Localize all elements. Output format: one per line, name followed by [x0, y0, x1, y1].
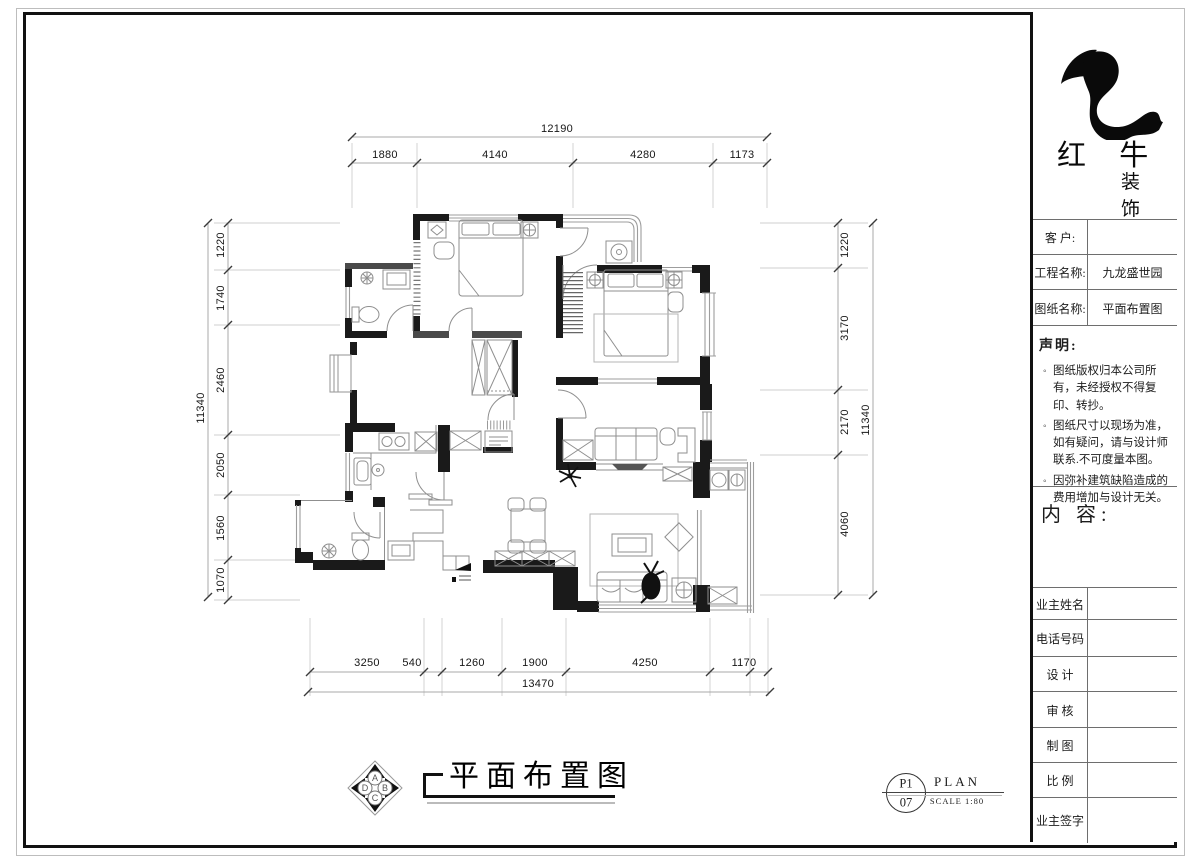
dimension-label: 1260	[459, 657, 485, 669]
field-label: 图纸名称:	[1033, 290, 1088, 326]
brand-logo-icon	[1051, 40, 1163, 140]
dimension-label: 12190	[541, 123, 573, 135]
dimension-label: 540	[402, 657, 421, 669]
dimension-label: 13470	[522, 678, 554, 690]
field-label: 客 户:	[1033, 220, 1088, 255]
field-row-customer: 客 户:	[1033, 219, 1177, 255]
dimension-label: 3170	[839, 315, 851, 341]
dimension-label: 2170	[839, 409, 851, 435]
dimension-label: 1220	[839, 232, 851, 258]
info-row: 业主签字	[1033, 797, 1177, 843]
sheet-number-top: P1	[899, 777, 912, 792]
caption-mark	[423, 773, 443, 776]
caption-mark	[423, 773, 426, 797]
field-value: 九龙盛世园	[1088, 264, 1177, 281]
info-row: 比 例	[1033, 762, 1177, 798]
dimension-label: 1220	[215, 232, 227, 258]
info-row: 设 计	[1033, 656, 1177, 692]
sheet-name: PLAN	[934, 774, 980, 790]
extension-lines	[214, 143, 868, 696]
dimension-label: 4060	[839, 511, 851, 537]
info-row: 业主姓名	[1033, 587, 1177, 620]
svg-text:D: D	[362, 783, 369, 793]
info-label: 业主签字	[1033, 798, 1088, 843]
furniture	[301, 220, 747, 604]
floor-plan	[0, 0, 1030, 865]
sheet-scale: SCALE 1:80	[930, 796, 984, 806]
dimension-label: 11340	[195, 392, 207, 423]
info-label: 设 计	[1033, 657, 1088, 692]
compass-icon: A B C D	[346, 759, 404, 817]
dimension-label: 4280	[630, 149, 656, 161]
dimension-label: 2460	[215, 367, 227, 393]
svg-text:C: C	[372, 793, 379, 803]
dimension-label: 1070	[215, 567, 227, 593]
caption-underline-echo	[427, 802, 615, 804]
dimension-label: 1170	[732, 657, 757, 669]
info-label: 审 核	[1033, 692, 1088, 728]
drawing-sheet: { "title_block": { "brand": { "line1": "…	[0, 0, 1200, 865]
brand-subname: 装 饰	[1121, 167, 1177, 221]
statement-heading: 声明:	[1039, 336, 1172, 357]
info-label: 业主姓名	[1033, 588, 1088, 620]
divider	[1033, 486, 1177, 487]
dimension-label: 2050	[215, 452, 227, 478]
statement: 声明: 图纸版权归本公司所有，未经授权不得复印、转抄。 图纸尺寸以现场为准，如有…	[1039, 336, 1172, 510]
dimension-label: 1900	[522, 657, 548, 669]
info-label: 电话号码	[1033, 620, 1088, 657]
windows	[297, 215, 754, 613]
dimension-label: 1740	[215, 285, 227, 311]
drawing-caption: 平面布置图	[449, 751, 634, 795]
dimension-label: 1880	[372, 149, 398, 161]
dimension-label: 4250	[632, 657, 658, 669]
dimension-label: 1560	[215, 515, 227, 541]
dimension-label: 4140	[482, 149, 508, 161]
svg-text:B: B	[382, 783, 388, 793]
info-row: 电话号码	[1033, 619, 1177, 657]
statement-item: 图纸版权归本公司所有，未经授权不得复印、转抄。	[1043, 363, 1170, 415]
info-label: 比 例	[1033, 763, 1088, 798]
caption-underline	[423, 795, 615, 798]
field-label: 工程名称:	[1033, 255, 1088, 290]
dimension-label: 3250	[354, 657, 380, 669]
field-row-project: 工程名称: 九龙盛世园	[1033, 254, 1177, 290]
divider	[1033, 325, 1177, 326]
svg-text:A: A	[372, 773, 378, 783]
info-label: 制 图	[1033, 728, 1088, 763]
dimension-label: 11340	[860, 404, 872, 435]
info-row: 制 图	[1033, 727, 1177, 763]
sheet-divider	[882, 792, 1004, 793]
field-row-sheet: 图纸名称: 平面布置图	[1033, 289, 1177, 326]
dimension-label: 1173	[730, 149, 755, 161]
content-heading: 内 容:	[1041, 498, 1112, 527]
sheet-number-bottom: 07	[900, 796, 913, 811]
field-value: 平面布置图	[1088, 300, 1177, 317]
info-row: 审 核	[1033, 691, 1177, 728]
statement-item: 图纸尺寸以现场为准，如有疑问，请与设计师联系.不可度量本图。	[1043, 418, 1170, 470]
title-block: 红 牛 装 饰 客 户: 工程名称: 九龙盛世园 图纸名称: 平面布置图 声明:…	[1030, 12, 1177, 842]
